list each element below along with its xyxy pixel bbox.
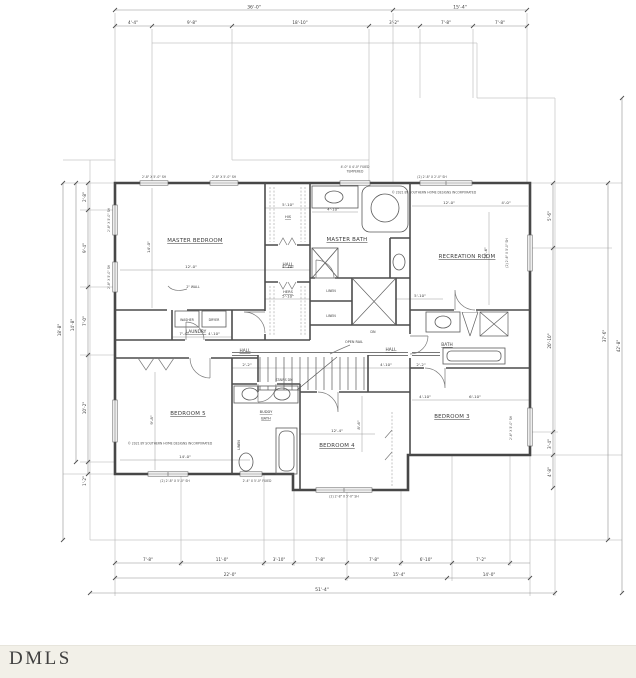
- washer-label: WASHER: [180, 318, 195, 322]
- dim-label: 9'-4": [82, 243, 87, 253]
- dim-label: 4'-0": [501, 200, 510, 205]
- dim-label: 7'-8": [441, 20, 451, 25]
- dim-label: 3'-2": [389, 20, 399, 25]
- room-label-bedroom-5: BEDROOM 5: [170, 411, 206, 417]
- window-label: 2'-8" X 5'-0" SH: [142, 175, 167, 179]
- dim-label: 4'-10": [208, 331, 220, 336]
- dim-label: 8'-6": [356, 420, 361, 429]
- wall-note-label: 2" WALL: [186, 285, 199, 289]
- dim-label: 5'-10": [282, 264, 294, 269]
- copyright-text-1: © 2021 BY SOUTHERN HOME DESIGNS INCORPOR…: [392, 191, 477, 195]
- dim-label: 12'-0": [185, 264, 197, 269]
- linen-label-1: LINEN: [326, 289, 336, 293]
- wall-openings: [185, 243, 476, 394]
- dim-label: 51'-4": [315, 587, 329, 593]
- dim-label: 14'-8": [70, 319, 75, 332]
- dim-label: 4'-10": [380, 362, 392, 367]
- dim-label: 6'-10": [420, 557, 433, 562]
- dim-label: 15'-4": [393, 572, 406, 577]
- room-label-bath: BATH: [441, 342, 452, 348]
- dim-label: 14'-0": [179, 454, 191, 459]
- dim-label: 18'-8": [57, 324, 62, 337]
- dmls-watermark: DMLS: [0, 646, 72, 670]
- construction-lines: [63, 43, 555, 540]
- dim-label: 3'-10": [273, 557, 286, 562]
- dn-label: DN: [370, 330, 376, 334]
- dim-label: 4'-10": [327, 207, 339, 212]
- open-rail-label: OPEN RAIL: [345, 340, 363, 344]
- hall-label-right: HALL: [386, 347, 398, 353]
- dim-label: 20'-10": [547, 333, 552, 348]
- room-label-master-bedroom: MASTER BEDROOM: [167, 238, 223, 244]
- mls-watermark-bar: DMLS: [0, 645, 636, 678]
- dim-label: 6'-10": [469, 394, 481, 399]
- dim-label: 2'-8": [82, 192, 87, 202]
- dim-label: 22'-0": [224, 572, 237, 577]
- dim-label: 1'-2": [82, 476, 87, 486]
- window-label: 2'-8" X 5'-0" SH: [212, 175, 237, 179]
- room-label-master-bath: MASTER BATH: [327, 237, 368, 243]
- dim-label: 2'-2": [242, 362, 251, 367]
- master-vanity: [312, 186, 358, 208]
- dim-label: 7'-2": [476, 557, 486, 562]
- labels: 36'-0" 15'-4" 4'-4" 9'-8" 18'-10" 3'-2" …: [57, 5, 621, 594]
- bath-sink: [435, 316, 451, 328]
- dim-label: 12'-4": [331, 428, 343, 433]
- window-label: 2'-6" X 5'-0" SH: [509, 415, 513, 440]
- dim-label: 7'-8": [315, 557, 325, 562]
- linen-label-buddy: LINEN: [237, 440, 241, 450]
- dim-label: 18'-10": [292, 20, 307, 25]
- dim-label: 7'-8": [369, 557, 379, 562]
- dim-label: 37'-6": [602, 330, 607, 343]
- extension-lines: [63, 13, 622, 596]
- window-label: 2'-8" X 5'-0" SH: [107, 207, 111, 232]
- stairs-label: STAIRS DN: [276, 378, 294, 382]
- room-label-buddy-bath-1: BUDDY: [260, 410, 273, 414]
- dim-label: 11'-0": [216, 557, 229, 562]
- dim-label: 10'-2": [82, 402, 87, 415]
- dim-label: 7'-8": [495, 20, 505, 25]
- dim-label: 5'-10": [414, 293, 426, 298]
- dim-label: 9'-8": [149, 415, 154, 424]
- dim-label: 2'-2": [416, 362, 425, 367]
- bath-tub: [443, 348, 505, 364]
- dim-label: 14'-0": [483, 572, 496, 577]
- interior-dimension-lines: [120, 188, 530, 470]
- dim-label: 12'-0": [443, 200, 455, 205]
- room-label-laundry: LAUNDRY: [186, 329, 207, 335]
- window-label: (2) 2'-8" X 5'-0" SH: [329, 495, 359, 499]
- window-label: 2'-4" X 5'-0" FIXED: [243, 479, 272, 483]
- floor-plan-sheet: 36'-0" 15'-4" 4'-4" 9'-8" 18'-10" 3'-2" …: [0, 0, 636, 678]
- dim-label: 7'-0": [82, 316, 87, 326]
- master-sink: [325, 191, 343, 203]
- master-toilet: [393, 254, 405, 270]
- window-label: (2) 2'-8" X 5'-0" SH: [160, 479, 190, 483]
- door-swings: [138, 238, 475, 460]
- room-label-bedroom-3: BEDROOM 3: [434, 414, 470, 420]
- dim-label: 4'-10": [419, 394, 431, 399]
- room-label-bedroom-4: BEDROOM 4: [319, 443, 355, 449]
- x-hatch-boxes: [352, 278, 508, 336]
- dim-label: 36'-0": [247, 5, 261, 11]
- his-closet-label: HIS: [285, 215, 292, 219]
- hall-label-left: HALL: [240, 348, 252, 354]
- window-label: (2) 2'-6" X 5'-0" SH: [505, 238, 509, 268]
- dim-label: 5'-6": [547, 211, 552, 221]
- buddy-sink-1: [242, 388, 258, 400]
- dim-label: 5'-10": [282, 294, 294, 299]
- dryer-label: DRYER: [209, 318, 220, 322]
- dim-label: 16'-6": [483, 247, 488, 259]
- dim-label: 14'-0": [146, 241, 151, 253]
- dim-label: 7'-8": [143, 557, 153, 562]
- dim-label: 42'-8": [616, 340, 621, 353]
- window-label: 4'-0" X 4'-0" FIXED: [341, 165, 370, 169]
- buddy-toilet: [239, 453, 253, 471]
- window-label: 2'-8" X 5'-0" SH: [107, 264, 111, 289]
- dim-label: 3'-4": [547, 439, 552, 449]
- dim-label: 15'-4": [453, 5, 467, 11]
- floor-plan-drawing: 36'-0" 15'-4" 4'-4" 9'-8" 18'-10" 3'-2" …: [0, 0, 636, 645]
- dim-label: 7'-4": [179, 331, 188, 336]
- dim-label: 9'-8": [187, 20, 197, 25]
- dim-label: 4'-4": [128, 20, 138, 25]
- dim-label: 4'-8": [547, 467, 552, 477]
- room-label-buddy-bath-2: BATH: [261, 417, 271, 421]
- dim-label: 5'-10": [282, 202, 294, 207]
- window-label: (2) 2'-8" X 2'-0" SH: [417, 175, 447, 179]
- window-label: TEMPERED: [346, 170, 364, 174]
- bath-vanity: [426, 312, 460, 332]
- linen-label-2: LINEN: [326, 314, 336, 318]
- copyright-text-2: © 2021 BY SOUTHERN HOME DESIGNS INCORPOR…: [128, 442, 213, 446]
